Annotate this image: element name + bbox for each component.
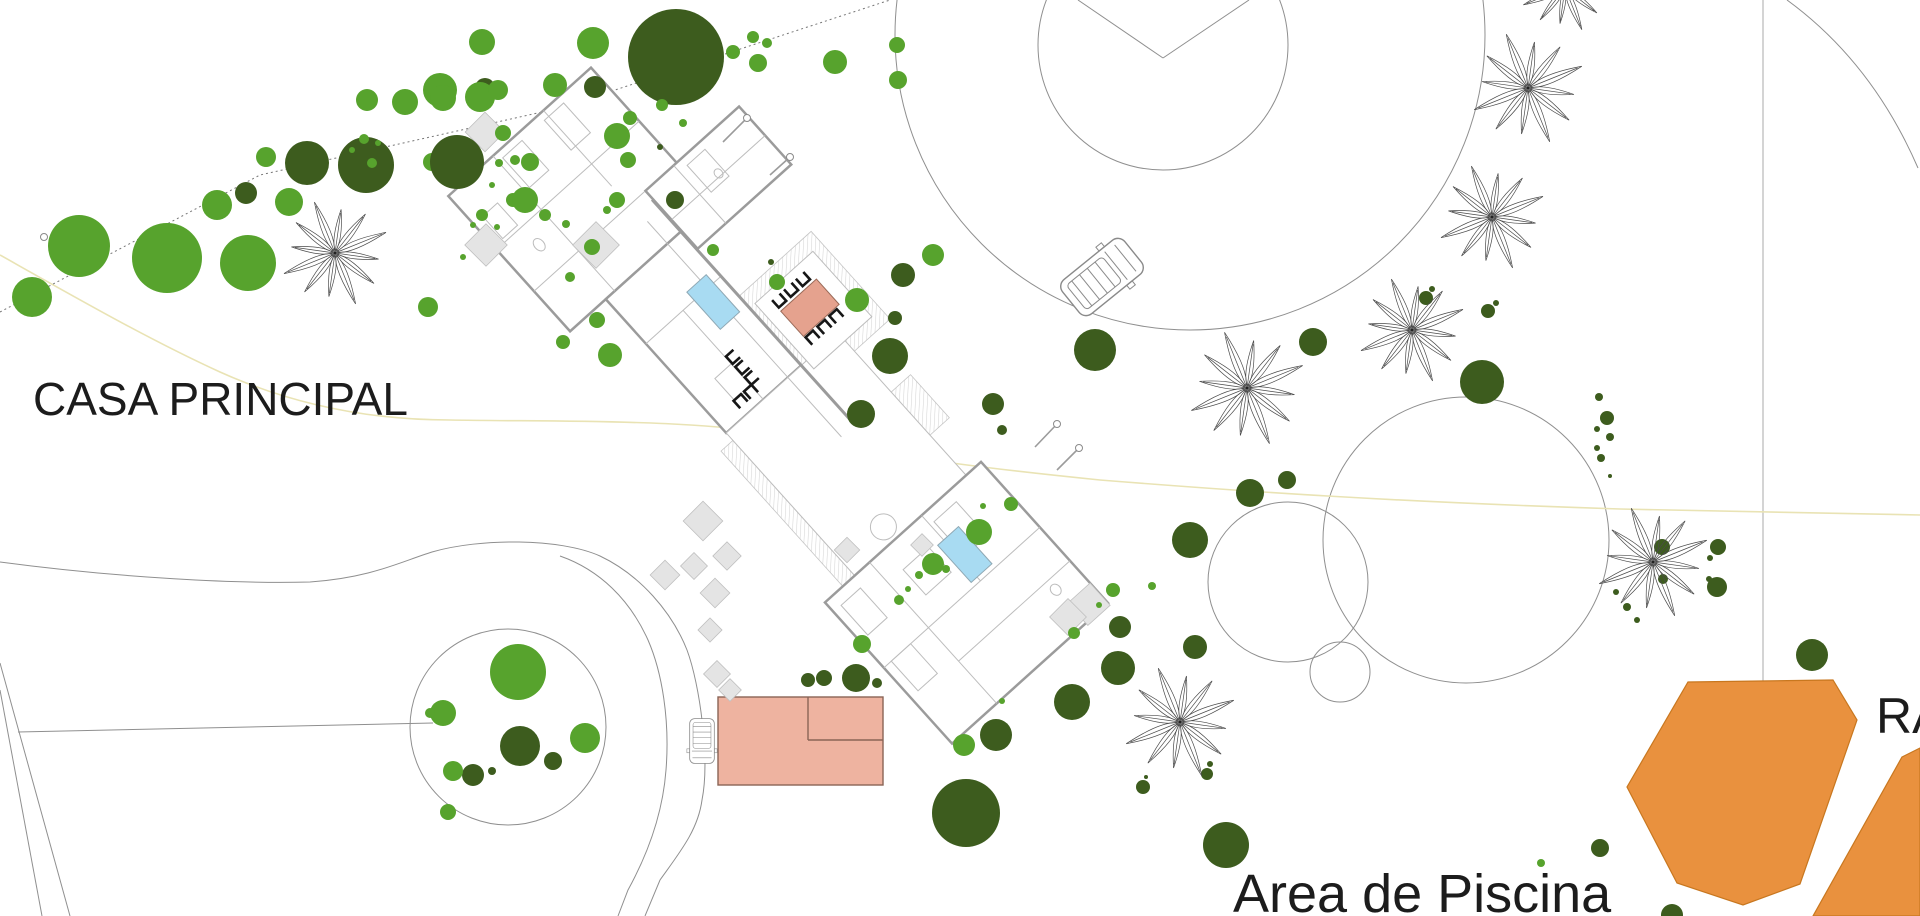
tree-canopy-light: [1106, 583, 1120, 597]
tree-canopy-dark: [1172, 522, 1208, 558]
tree-canopy-light: [570, 723, 600, 753]
tree-canopy-light: [512, 187, 538, 213]
side-mirror: [714, 749, 717, 753]
palm-frond: [1145, 721, 1182, 765]
palm-tree: [1473, 33, 1584, 144]
tree-canopy-dark: [888, 311, 902, 325]
tree-canopy-dark: [891, 263, 915, 287]
tree-canopy-light: [1096, 602, 1102, 608]
tree-canopy-light: [999, 698, 1005, 704]
tree-canopy-dark: [1597, 454, 1605, 462]
palm-tree: [1598, 507, 1709, 618]
palm-frond: [1379, 329, 1414, 371]
tree-canopy-dark: [1429, 286, 1435, 292]
tree-canopy-light: [375, 140, 381, 146]
palm-frond: [1563, 0, 1585, 31]
tree-canopy-dark: [1595, 393, 1603, 401]
palm-frond: [1246, 386, 1292, 424]
road-circle: [895, 0, 1485, 330]
tree-canopy-dark: [1203, 822, 1249, 868]
tree-canopy-light: [476, 209, 488, 221]
tree-canopy-light: [275, 188, 303, 216]
palm-tree: [1190, 331, 1304, 445]
tree-canopy-light: [589, 312, 605, 328]
palm-frond: [1610, 527, 1654, 564]
tree-canopy-dark: [544, 752, 562, 770]
tree-canopy-dark: [235, 182, 257, 204]
tree-canopy-light: [845, 288, 869, 312]
palm-frond: [1491, 176, 1526, 218]
tree-canopy-light: [905, 586, 911, 592]
tree-canopy-dark: [1207, 761, 1213, 767]
tree-canopy-dark: [1074, 329, 1116, 371]
tree-canopy-light: [922, 244, 944, 266]
tree-canopy-dark: [488, 767, 496, 775]
tree-canopy-light: [562, 220, 570, 228]
palm-trunk-center: [1651, 560, 1655, 564]
tree-canopy-light: [823, 50, 847, 74]
tree-canopy-light: [349, 147, 355, 153]
palm-frond: [1211, 387, 1249, 433]
pin-marker: [787, 154, 794, 161]
tree-canopy-dark: [1796, 639, 1828, 671]
tree-canopy-light: [490, 644, 546, 700]
road-edge: [0, 542, 705, 916]
tree-canopy-light: [440, 804, 456, 820]
tree-canopy-light: [749, 54, 767, 72]
driveway-roads: [0, 0, 1918, 916]
tree-canopy-dark: [1606, 433, 1614, 441]
tree-canopy-light: [539, 209, 551, 221]
tree-canopy-dark: [1654, 539, 1670, 555]
palm-trunk-center: [1526, 86, 1530, 90]
tree-canopy-dark: [1608, 474, 1612, 478]
stepping-pad: [683, 501, 723, 541]
tree-canopy-light: [220, 235, 276, 291]
label-ra-partial: RA: [1876, 688, 1920, 744]
tree-canopy-dark: [816, 670, 832, 686]
tree-canopy-dark: [982, 393, 1004, 415]
palm-frond: [1451, 184, 1493, 219]
tree-canopy-light: [443, 761, 463, 781]
tree-canopy-dark: [1707, 577, 1727, 597]
palm-trunk-center: [333, 251, 337, 255]
tree-canopy-dark: [1481, 304, 1495, 318]
tree-canopy-light: [894, 595, 904, 605]
tree-canopy-light: [488, 80, 508, 100]
garage-building: [718, 697, 883, 785]
palm-tree: [1125, 667, 1236, 778]
tree-canopy-light: [367, 158, 377, 168]
tree-canopy-dark: [801, 673, 815, 687]
pin-leader: [1057, 448, 1079, 470]
tree-canopy-dark: [338, 137, 394, 193]
tree-canopy-dark: [1054, 684, 1090, 720]
palm-frond: [334, 252, 376, 287]
tree-canopy-light: [747, 31, 759, 43]
palm-frond: [1557, 0, 1567, 24]
stepping-pad: [650, 560, 680, 590]
palm-tree: [1360, 278, 1465, 383]
tree-canopy-dark: [980, 719, 1012, 751]
palm-trunk-center: [1245, 386, 1249, 390]
palm-frond: [294, 220, 336, 255]
tree-canopy-light: [256, 147, 276, 167]
tree-canopy-dark: [1710, 539, 1726, 555]
stepping-pad: [681, 553, 708, 580]
tree-canopy-light: [603, 206, 611, 214]
tree-canopy-light: [584, 239, 600, 255]
tree-canopy-light: [604, 123, 630, 149]
pin-marker: [744, 115, 751, 122]
tree-canopy-dark: [1623, 603, 1631, 611]
tree-canopy-light: [1068, 627, 1080, 639]
roundabout-spoke: [1163, 0, 1249, 58]
tree-canopy-light: [460, 254, 466, 260]
tree-canopy-light: [470, 222, 476, 228]
road-circle: [1310, 642, 1370, 702]
palm-frond: [1526, 45, 1563, 89]
tree-canopy-dark: [1613, 589, 1619, 595]
stepping-pad: [713, 542, 741, 570]
tree-canopy-light: [942, 565, 950, 573]
plan-drawing: CASA PRINCIPAL Area de Piscina RA: [0, 0, 1920, 916]
tree-canopy-dark: [872, 338, 908, 374]
tree-canopy-dark: [1419, 291, 1433, 305]
tree-canopy-light: [762, 38, 772, 48]
tree-canopy-dark: [666, 191, 684, 209]
tree-canopy-dark: [1661, 904, 1683, 916]
tree-canopy-dark: [500, 726, 540, 766]
pin-marker: [41, 234, 48, 241]
tree-canopy-dark: [1278, 471, 1296, 489]
tree-canopy-light: [48, 215, 110, 277]
tree-canopy-light: [556, 335, 570, 349]
tree-canopy-light: [494, 224, 500, 230]
pin-marker: [1076, 445, 1083, 452]
tree-canopy-dark: [932, 779, 1000, 847]
tree-canopy-light: [425, 708, 435, 718]
tree-canopy-dark: [430, 135, 484, 189]
tree-canopy-light: [12, 277, 52, 317]
road-circle: [1208, 502, 1368, 662]
tree-canopy-light: [510, 155, 520, 165]
tree-canopy-light: [953, 734, 975, 756]
tree-canopy-dark: [1144, 775, 1148, 779]
palm-frond: [1371, 297, 1413, 332]
tree-canopy-dark: [1136, 780, 1150, 794]
palm-frond: [1651, 519, 1688, 563]
tree-canopy-dark: [657, 144, 663, 150]
palm-tree: [283, 201, 388, 306]
palm-frond: [1459, 216, 1494, 258]
tree-canopy-light: [1148, 582, 1156, 590]
tree-canopy-light: [202, 190, 232, 220]
tree-canopy-dark: [1594, 445, 1600, 451]
palm-frond: [1179, 720, 1223, 757]
stepping-pad: [698, 618, 722, 642]
palm-frond: [1485, 53, 1529, 90]
side-mirror: [687, 749, 690, 753]
palm-frond: [1491, 216, 1533, 251]
tree-canopy-dark: [1299, 328, 1327, 356]
tree-canopy-light: [769, 274, 785, 290]
tree-canopy-light: [889, 71, 907, 89]
tree-canopy-dark: [285, 141, 329, 185]
palm-trunk-center: [1178, 720, 1182, 724]
label-casa-principal: CASA PRINCIPAL: [33, 373, 408, 425]
tree-canopy-dark: [842, 664, 870, 692]
tree-canopy-light: [495, 159, 503, 167]
label-area-de-piscina: Area de Piscina: [1233, 864, 1612, 916]
palm-frond: [302, 252, 337, 294]
tree-canopy-light: [469, 29, 495, 55]
tree-canopy-dark: [768, 259, 774, 265]
tree-canopy-dark: [628, 9, 724, 105]
palm-tree: [1440, 165, 1545, 270]
tree-canopy-light: [609, 192, 625, 208]
tree-canopy-light: [356, 89, 378, 111]
palm-frond: [1202, 352, 1248, 390]
tree-canopy-light: [922, 553, 944, 575]
palm-frond: [1493, 87, 1530, 131]
pin-leader: [1035, 424, 1057, 447]
car: [1054, 231, 1150, 323]
tree-canopy-light: [726, 45, 740, 59]
tree-canopy-light: [430, 85, 456, 111]
tree-canopy-dark: [1600, 411, 1614, 425]
road-edge: [1787, 0, 1918, 168]
tree-canopy-light: [359, 134, 369, 144]
tree-canopy-light: [521, 153, 539, 171]
tree-canopy-dark: [1594, 426, 1600, 432]
car-body: [690, 719, 715, 764]
tree-canopy-light: [577, 27, 609, 59]
road-edge: [0, 690, 42, 916]
tree-canopy-dark: [1460, 360, 1504, 404]
tree-canopy-light: [707, 244, 719, 256]
survey-pin: [1057, 445, 1083, 471]
palm-frond: [1411, 329, 1453, 364]
tree-canopy-dark: [1183, 635, 1207, 659]
tree-canopy-dark: [1493, 300, 1499, 306]
tree-canopy-dark: [1634, 617, 1640, 623]
palm-frond: [1527, 86, 1571, 123]
survey-pin: [41, 234, 48, 241]
palm-frond: [1618, 561, 1655, 605]
palm-trunk-center: [1490, 215, 1494, 219]
palm-frond: [1245, 343, 1283, 389]
tree-canopy-light: [489, 182, 495, 188]
tree-canopy-light: [966, 519, 992, 545]
tree-canopy-dark: [847, 400, 875, 428]
tree-canopy-light: [853, 635, 871, 653]
tree-canopy-light: [915, 571, 923, 579]
pin-marker: [1054, 421, 1061, 428]
tree-canopy-dark: [462, 764, 484, 786]
tree-canopy-dark: [1236, 479, 1264, 507]
orange-hexagon: [1627, 680, 1857, 905]
tree-canopy-light: [620, 152, 636, 168]
tree-canopy-light: [889, 37, 905, 53]
car-body: [1057, 235, 1147, 320]
site-plan-canvas: CASA PRINCIPAL Area de Piscina RA: [0, 0, 1920, 916]
survey-pin: [1035, 421, 1061, 448]
tree-canopy-light: [392, 89, 418, 115]
palm-frond: [1137, 687, 1181, 724]
palm-frond: [1178, 679, 1215, 723]
tree-canopy-dark: [872, 678, 882, 688]
tree-canopy-light: [495, 125, 511, 141]
garage-roof: [718, 697, 883, 785]
tree-canopy-dark: [1201, 768, 1213, 780]
tree-canopy-light: [565, 272, 575, 282]
tree-canopy-light: [543, 73, 567, 97]
tree-canopy-light: [679, 119, 687, 127]
palm-trunk-center: [1410, 328, 1414, 332]
stepping-pad: [700, 578, 730, 608]
tree-canopy-dark: [997, 425, 1007, 435]
road-circle: [1038, 0, 1288, 170]
tree-canopy-light: [656, 99, 668, 111]
car: [687, 719, 717, 764]
tree-canopy-light: [980, 503, 986, 509]
tree-canopy-dark: [584, 76, 606, 98]
road-edge: [18, 723, 433, 732]
roundabout-spoke: [1078, 0, 1163, 58]
tree-canopy-dark: [1109, 616, 1131, 638]
tree-canopy-light: [418, 297, 438, 317]
palm-tree: [1522, 0, 1608, 31]
tree-canopy-light: [623, 111, 637, 125]
road-circle: [1323, 397, 1609, 683]
tree-canopy-dark: [1591, 839, 1609, 857]
tree-canopy-light: [598, 343, 622, 367]
tree-canopy-dark: [1101, 651, 1135, 685]
palm-frond: [334, 212, 369, 254]
tree-canopy-light: [132, 223, 202, 293]
tree-canopy-light: [1004, 497, 1018, 511]
tree-canopy-dark: [1707, 555, 1713, 561]
